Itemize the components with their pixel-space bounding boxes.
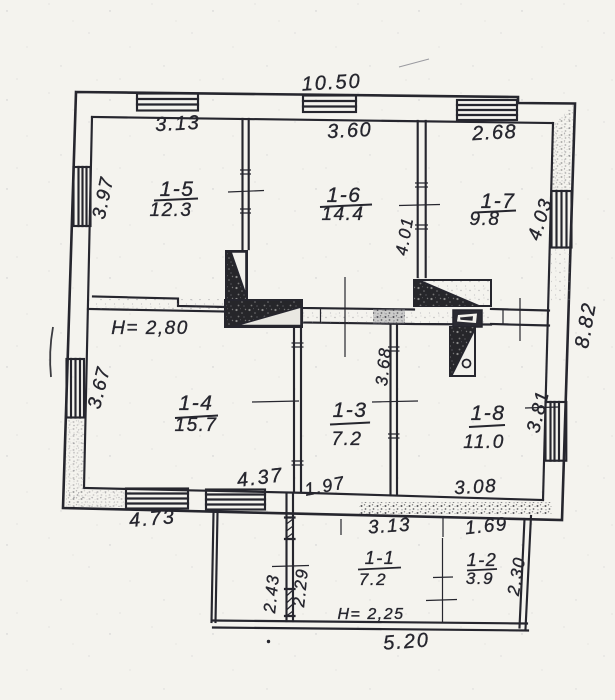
svg-text:5.20: 5.20 — [382, 629, 430, 654]
svg-text:3.13: 3.13 — [367, 515, 411, 539]
svg-text:3.60: 3.60 — [327, 119, 373, 143]
svg-text:1-3: 1-3 — [333, 399, 368, 422]
svg-text:10.50: 10.50 — [301, 70, 362, 95]
svg-text:H= 2,80: H= 2,80 — [111, 318, 189, 339]
svg-text:7.2: 7.2 — [332, 429, 363, 450]
svg-text:1-8: 1-8 — [471, 402, 506, 425]
svg-text:15.7: 15.7 — [175, 415, 218, 436]
svg-text:3.9: 3.9 — [466, 569, 494, 588]
svg-text:3.08: 3.08 — [454, 476, 498, 499]
svg-text:1.69: 1.69 — [464, 514, 509, 539]
svg-text:9.8: 9.8 — [470, 209, 501, 230]
svg-text:1-4: 1-4 — [179, 392, 214, 415]
svg-text:3.13: 3.13 — [155, 112, 201, 136]
svg-text:2.68: 2.68 — [471, 121, 518, 145]
svg-text:14.4: 14.4 — [322, 204, 365, 225]
svg-text:12.3: 12.3 — [150, 200, 193, 221]
svg-text:1-5: 1-5 — [160, 178, 195, 201]
svg-text:1-1: 1-1 — [365, 548, 396, 568]
svg-text:H= 2,25: H= 2,25 — [338, 606, 405, 623]
svg-text:4.73: 4.73 — [128, 506, 177, 532]
svg-text:3.68: 3.68 — [372, 346, 395, 387]
svg-text:1-2: 1-2 — [467, 550, 498, 570]
svg-text:11.0: 11.0 — [463, 432, 505, 453]
svg-text:7.2: 7.2 — [359, 570, 387, 589]
